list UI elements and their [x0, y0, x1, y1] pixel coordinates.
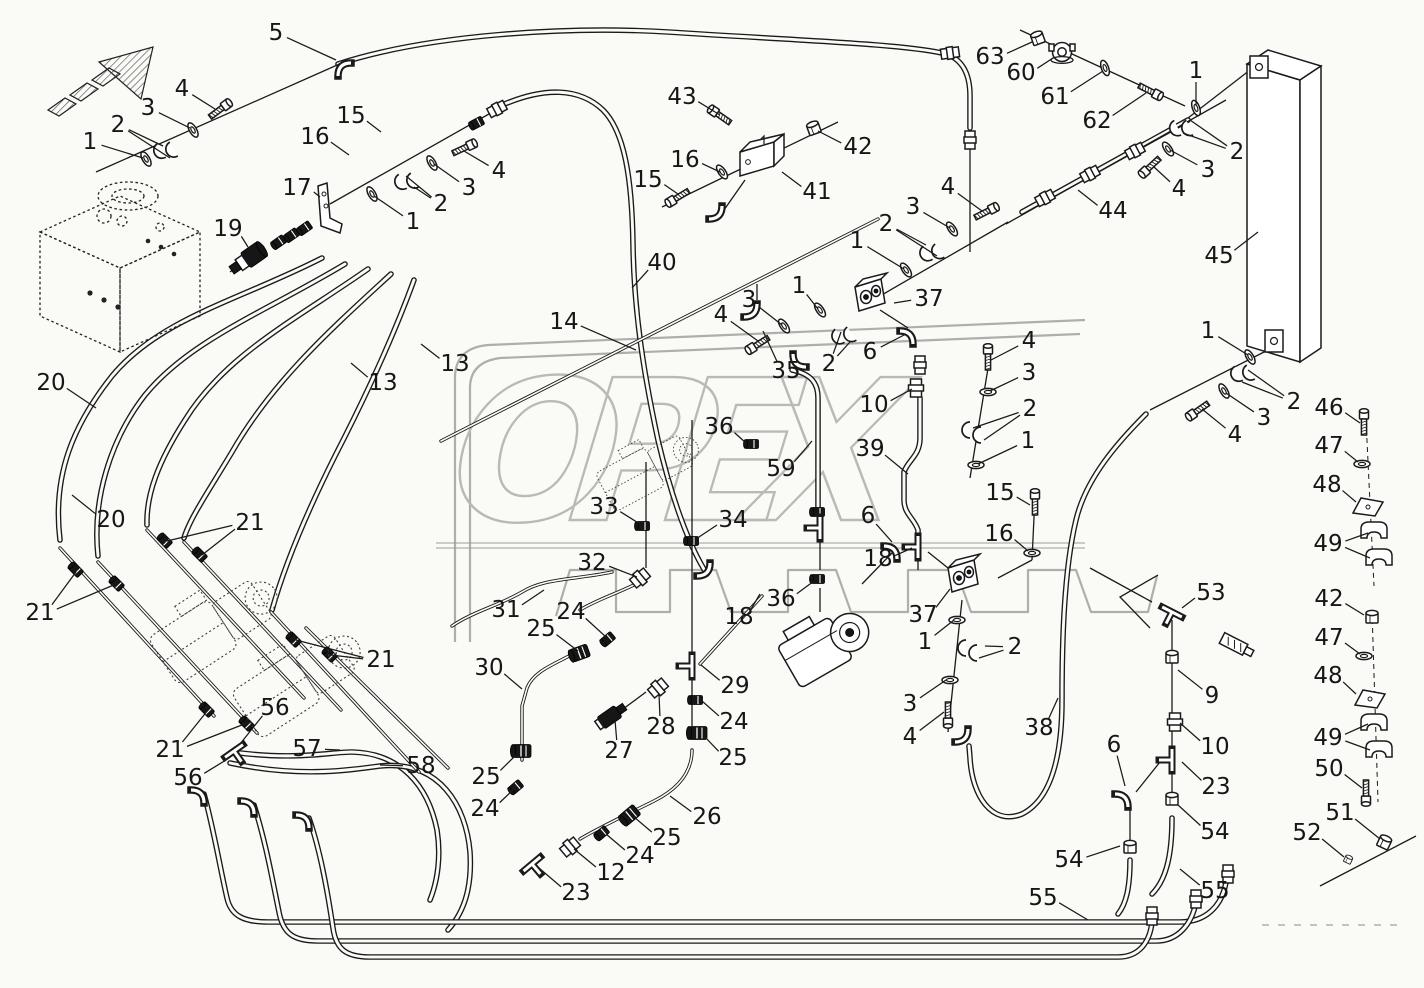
clamp-pair: [1228, 361, 1255, 389]
leader-line: [1154, 167, 1170, 182]
part-number: 13: [368, 370, 397, 396]
leader-line: [1182, 762, 1201, 780]
mounting-bracket: [1353, 498, 1383, 516]
leader-line: [159, 113, 190, 128]
part-number: 1: [83, 129, 98, 155]
part-number: 14: [549, 309, 578, 335]
nut: [593, 825, 610, 842]
part-number: 4: [1172, 176, 1187, 202]
part-number: 41: [802, 179, 831, 205]
part-number: 35: [771, 358, 800, 384]
tee-fitting: [1159, 749, 1172, 771]
leader-line: [759, 307, 782, 325]
axis-line: [724, 180, 745, 210]
part-number: 54: [1200, 819, 1229, 845]
part-number: 21: [25, 600, 54, 626]
part-number: 56: [173, 765, 202, 791]
valve-block: [740, 134, 784, 176]
part-number: 47: [1314, 625, 1343, 651]
washer: [1099, 59, 1111, 76]
part-number: 56: [260, 695, 289, 721]
callout-38: 38: [1024, 698, 1058, 741]
axis-line: [1320, 836, 1416, 886]
part-number: 25: [526, 616, 555, 642]
tee-fitting: [679, 655, 692, 677]
leader-line: [434, 164, 459, 182]
part-number: 51: [1325, 800, 1354, 826]
part-number: 17: [282, 175, 311, 201]
plug-fitting: [1219, 633, 1255, 659]
leader-line: [701, 665, 720, 680]
mounting-bracket: [1355, 690, 1385, 708]
callout-6: 6: [1107, 732, 1125, 786]
elbow-fitting: [1115, 794, 1128, 807]
leader-line: [129, 130, 163, 146]
nut: [635, 522, 650, 531]
callout-9: 9: [1178, 670, 1219, 709]
part-number: 20: [96, 507, 125, 533]
part-number: 12: [596, 860, 625, 886]
hydraulic-parts-diagram: OPEX 54321151617194321434241161540146360…: [0, 0, 1424, 988]
leader-line: [1059, 903, 1088, 920]
part-number: 30: [474, 655, 503, 681]
callout-21: 21: [167, 510, 265, 555]
part-number: 48: [1313, 663, 1342, 689]
clamp-pair: [958, 640, 977, 661]
callout-4: 4: [903, 712, 944, 750]
callout-56: 56: [173, 760, 226, 791]
callout-1: 1: [1201, 318, 1248, 355]
part-number: 45: [1204, 243, 1233, 269]
part-number: 24: [625, 843, 654, 869]
part-number: 6: [861, 503, 876, 529]
washer: [186, 121, 200, 138]
part-number: 49: [1313, 531, 1342, 557]
callout-4: 4: [1202, 409, 1242, 448]
elbow-fitting: [955, 729, 968, 742]
bolt: [664, 187, 691, 208]
callout-24: 24: [702, 701, 749, 735]
axis-line: [880, 222, 1008, 296]
axis-line: [880, 310, 908, 328]
clamp-pair: [917, 240, 945, 268]
part-number: 6: [1107, 732, 1122, 758]
leader-line: [818, 131, 841, 143]
callout-15: 15: [985, 480, 1030, 506]
part-number: 16: [670, 147, 699, 173]
callout-1: 1: [978, 428, 1035, 464]
leader-line: [1345, 413, 1360, 423]
callout-44: 44: [1078, 190, 1128, 224]
nut: [191, 546, 208, 563]
callout-4: 4: [1154, 167, 1186, 202]
part-number: 5: [269, 20, 284, 46]
callout-51: 51: [1325, 800, 1380, 839]
part-number: 18: [863, 546, 892, 572]
leader-line: [782, 172, 801, 187]
bolt: [984, 344, 993, 370]
bolt: [1137, 81, 1164, 101]
part-number: 3: [1257, 405, 1272, 431]
part-number: 52: [1292, 820, 1321, 846]
washer: [365, 185, 379, 202]
leader-line: [1178, 670, 1202, 689]
leader-line: [367, 121, 381, 132]
part-number: 3: [141, 95, 156, 121]
callout-49: 49: [1313, 531, 1370, 558]
leader-line: [504, 674, 522, 689]
leader-line: [702, 701, 719, 716]
direction-arrow-icon: [48, 47, 153, 116]
pipe-line: [60, 548, 214, 716]
part-number: 47: [1314, 433, 1343, 459]
callout-3: 3: [990, 360, 1036, 391]
part-number: 4: [175, 76, 190, 102]
manifold-block: [948, 554, 980, 592]
leader-line: [704, 736, 719, 751]
part-number: 44: [1098, 198, 1127, 224]
leader-line: [897, 229, 926, 245]
part-number: 36: [766, 586, 795, 612]
part-number: 60: [1006, 60, 1035, 86]
washer: [1160, 140, 1175, 157]
leader-line: [984, 415, 1020, 440]
axis-line: [928, 552, 948, 568]
leader-line: [1113, 93, 1146, 116]
oil-cooler: [1247, 50, 1321, 362]
leader-line: [1178, 805, 1200, 826]
part-number: 2: [1023, 396, 1038, 422]
part-number: 1: [1201, 318, 1216, 344]
leader-line: [1086, 846, 1120, 857]
leader-line: [1007, 42, 1032, 53]
nut-large: [510, 745, 531, 758]
part-number: 18: [724, 604, 753, 630]
part-number: 21: [235, 510, 264, 536]
elbow-fitting: [191, 790, 204, 803]
leader-line: [464, 151, 489, 166]
union-fitting: [646, 676, 669, 699]
leader-line: [606, 834, 625, 850]
callout-20: 20: [36, 370, 96, 408]
cap-nut: [1166, 650, 1178, 663]
leader-line: [1170, 150, 1197, 165]
callout-62: 62: [1082, 93, 1146, 134]
leader-line: [1322, 839, 1344, 857]
callout-42: 42: [1314, 586, 1364, 615]
leader-line: [923, 212, 950, 228]
part-number: 33: [589, 494, 618, 520]
hose-line: [147, 269, 368, 525]
leader-line: [556, 635, 578, 651]
washer: [139, 150, 153, 167]
cap-nut: [1366, 610, 1378, 623]
filler-cap: [1049, 43, 1075, 64]
part-number: 4: [714, 302, 729, 328]
callout-50: 50: [1314, 756, 1362, 788]
leader-line: [204, 760, 226, 773]
callout-25: 25: [704, 736, 748, 771]
callout-61: 61: [1040, 71, 1103, 110]
callout-2: 2: [979, 634, 1022, 660]
leader-line: [202, 529, 235, 555]
leader-line: [664, 185, 678, 194]
pipe-line: [522, 650, 580, 760]
axis-line: [1136, 762, 1160, 792]
leader-line: [1180, 869, 1200, 885]
leader-line: [421, 344, 439, 358]
callout-1: 1: [1189, 58, 1204, 105]
callout-47: 47: [1314, 625, 1360, 654]
leader-line: [500, 753, 518, 770]
leader-line: [187, 723, 247, 746]
part-number: 55: [1028, 885, 1057, 911]
part-number: 2: [879, 211, 894, 237]
part-number: 4: [903, 724, 918, 750]
leader-line: [978, 446, 1017, 464]
part-number: 2: [1287, 389, 1302, 415]
callout-15: 15: [336, 103, 381, 132]
part-number: 3: [1201, 157, 1216, 183]
part-number: 40: [647, 250, 676, 276]
leader-line: [670, 796, 691, 812]
part-number: 1: [406, 209, 421, 235]
callout-21: 21: [25, 572, 116, 626]
nut: [285, 631, 302, 648]
callout-23: 23: [539, 868, 591, 906]
washer: [942, 676, 958, 683]
leader-line: [351, 363, 368, 377]
hose-line: [272, 280, 414, 610]
callout-4: 4: [941, 174, 982, 211]
tee-fitting: [524, 857, 549, 881]
callout-60: 60: [1006, 58, 1053, 86]
callout-54: 54: [1054, 846, 1120, 873]
part-number: 15: [633, 167, 662, 193]
part-number: 24: [470, 796, 499, 822]
hose-collar: [964, 131, 976, 149]
washer: [714, 163, 729, 180]
part-number: 19: [213, 216, 242, 242]
part-number: 4: [492, 158, 507, 184]
elbow-fitting: [709, 206, 722, 219]
leader-line: [1343, 491, 1356, 502]
callout-3: 3: [903, 680, 946, 717]
part-number: 46: [1314, 395, 1343, 421]
leader-line: [731, 321, 758, 341]
leader-line: [1015, 540, 1028, 551]
part-number: 10: [1200, 734, 1229, 760]
part-number: 63: [975, 44, 1004, 70]
leader-line: [1345, 451, 1358, 462]
part-number: 28: [646, 714, 675, 740]
part-number: 1: [1189, 58, 1204, 84]
leader-line: [1071, 71, 1103, 92]
part-number: 25: [471, 764, 500, 790]
reference-line: [1120, 575, 1158, 628]
leader-line: [1202, 409, 1226, 428]
pipe-clamp: [1361, 522, 1387, 538]
part-number: 4: [1228, 422, 1243, 448]
leader-line: [586, 618, 606, 637]
part-number: 16: [984, 521, 1013, 547]
leader-line: [990, 378, 1018, 391]
cap-nut: [1376, 834, 1392, 850]
part-number: 37: [908, 602, 937, 628]
elbow-fitting: [241, 801, 254, 814]
part-number: 13: [440, 351, 469, 377]
part-number: 36: [704, 414, 733, 440]
leader-line: [182, 710, 208, 742]
leader-line: [985, 646, 1003, 647]
bolt: [1362, 780, 1371, 806]
nut: [688, 696, 703, 705]
callout-25: 25: [471, 753, 518, 790]
part-number: 38: [1024, 715, 1053, 741]
callout-37: 37: [908, 589, 950, 628]
callout-41: 41: [782, 172, 832, 205]
bolt: [1360, 409, 1369, 435]
leader-line: [807, 294, 818, 309]
hose-collar: [1146, 907, 1158, 925]
nut-large: [567, 644, 591, 663]
callout-1: 1: [374, 196, 420, 235]
part-number: 31: [491, 597, 520, 623]
part-number: 10: [859, 392, 888, 418]
callout-28: 28: [646, 694, 675, 740]
washer: [1024, 549, 1040, 556]
leader-line: [52, 572, 76, 605]
part-number: 3: [903, 691, 918, 717]
callout-19: 19: [213, 216, 248, 247]
manifold-block: [855, 273, 887, 311]
callout-4: 4: [175, 76, 215, 109]
part-number: 29: [720, 673, 749, 699]
nut: [744, 440, 759, 449]
callout-24: 24: [556, 599, 606, 637]
leader-line: [331, 142, 349, 155]
part-number: 58: [406, 753, 435, 779]
callout-55: 55: [1028, 885, 1088, 920]
callout-57: 57: [292, 736, 340, 762]
bolt: [451, 138, 479, 157]
part-number: 42: [1314, 586, 1343, 612]
callout-43: 43: [667, 84, 720, 115]
hose-line: [147, 269, 368, 525]
callout-48: 48: [1312, 472, 1356, 502]
part-number: 23: [561, 880, 590, 906]
callout-10: 10: [1180, 723, 1230, 760]
part-number: 16: [300, 124, 329, 150]
part-number: 3: [742, 287, 757, 313]
callout-29: 29: [701, 665, 750, 699]
leader-line: [522, 590, 544, 605]
part-number: 57: [292, 736, 321, 762]
leader-line: [867, 247, 904, 269]
cap-nut: [1030, 30, 1046, 46]
part-number: 37: [914, 286, 943, 312]
part-number: 21: [155, 737, 184, 763]
bolt: [944, 702, 953, 728]
cap-nut: [1166, 792, 1178, 805]
pipe-clamp: [1366, 741, 1392, 757]
cap-nut: [1124, 840, 1136, 853]
leader-line: [1345, 604, 1364, 615]
part-number: 20: [36, 370, 65, 396]
leader-line: [1343, 682, 1356, 694]
part-number: 15: [985, 480, 1014, 506]
leader-line: [1218, 337, 1248, 355]
washer: [425, 154, 439, 171]
leader-line: [287, 38, 336, 60]
leader-line: [797, 581, 814, 594]
tee-fitting: [905, 536, 918, 558]
part-number: 3: [1022, 360, 1037, 386]
callout-40: 40: [632, 250, 677, 288]
bolt: [1137, 155, 1162, 179]
part-number: 59: [766, 456, 795, 482]
part-number: 50: [1314, 756, 1343, 782]
mounting-plate: [318, 183, 342, 233]
leader-line: [991, 346, 1018, 360]
pipe-clamp: [1366, 549, 1392, 565]
part-number: 1: [1021, 428, 1036, 454]
cap-nut: [806, 120, 822, 136]
nut: [684, 537, 699, 546]
leader-line: [414, 187, 431, 198]
callout-30: 30: [474, 655, 522, 689]
leader-line: [1345, 774, 1362, 788]
union-fitting: [558, 835, 581, 858]
part-number: 25: [718, 745, 747, 771]
nut-large: [686, 727, 707, 740]
part-number: 1: [792, 273, 807, 299]
part-number: 26: [692, 804, 721, 830]
pipe-clamp: [1361, 714, 1387, 730]
leader-line: [894, 300, 911, 303]
bolt: [1184, 400, 1211, 422]
callout-17: 17: [282, 175, 320, 201]
callout-16: 16: [984, 521, 1028, 551]
part-number: 43: [667, 84, 696, 110]
callout-46: 46: [1314, 395, 1360, 423]
callout-1: 1: [792, 273, 818, 309]
part-number: 1: [918, 629, 933, 655]
nut: [467, 116, 484, 131]
leader-line: [634, 817, 652, 832]
leader-line: [659, 694, 660, 716]
cap-nut: [1343, 854, 1353, 864]
part-number: 3: [906, 194, 921, 220]
leader-line: [101, 145, 143, 158]
leader-line: [1345, 643, 1360, 654]
part-number: 2: [111, 112, 126, 138]
leader-line: [67, 388, 96, 408]
leader-line: [57, 584, 116, 609]
part-number: 2: [434, 191, 449, 217]
leader-line: [920, 680, 946, 698]
nut: [67, 561, 84, 578]
washer: [944, 220, 959, 237]
union-fitting: [1168, 713, 1183, 731]
callout-53: 53: [1182, 580, 1226, 608]
hydraulic-tank: [40, 182, 200, 352]
part-number: 6: [863, 339, 878, 365]
leader-line: [1226, 393, 1254, 412]
part-number: 4: [1022, 328, 1037, 354]
part-number: 3: [462, 175, 477, 201]
part-number: 34: [718, 507, 747, 533]
